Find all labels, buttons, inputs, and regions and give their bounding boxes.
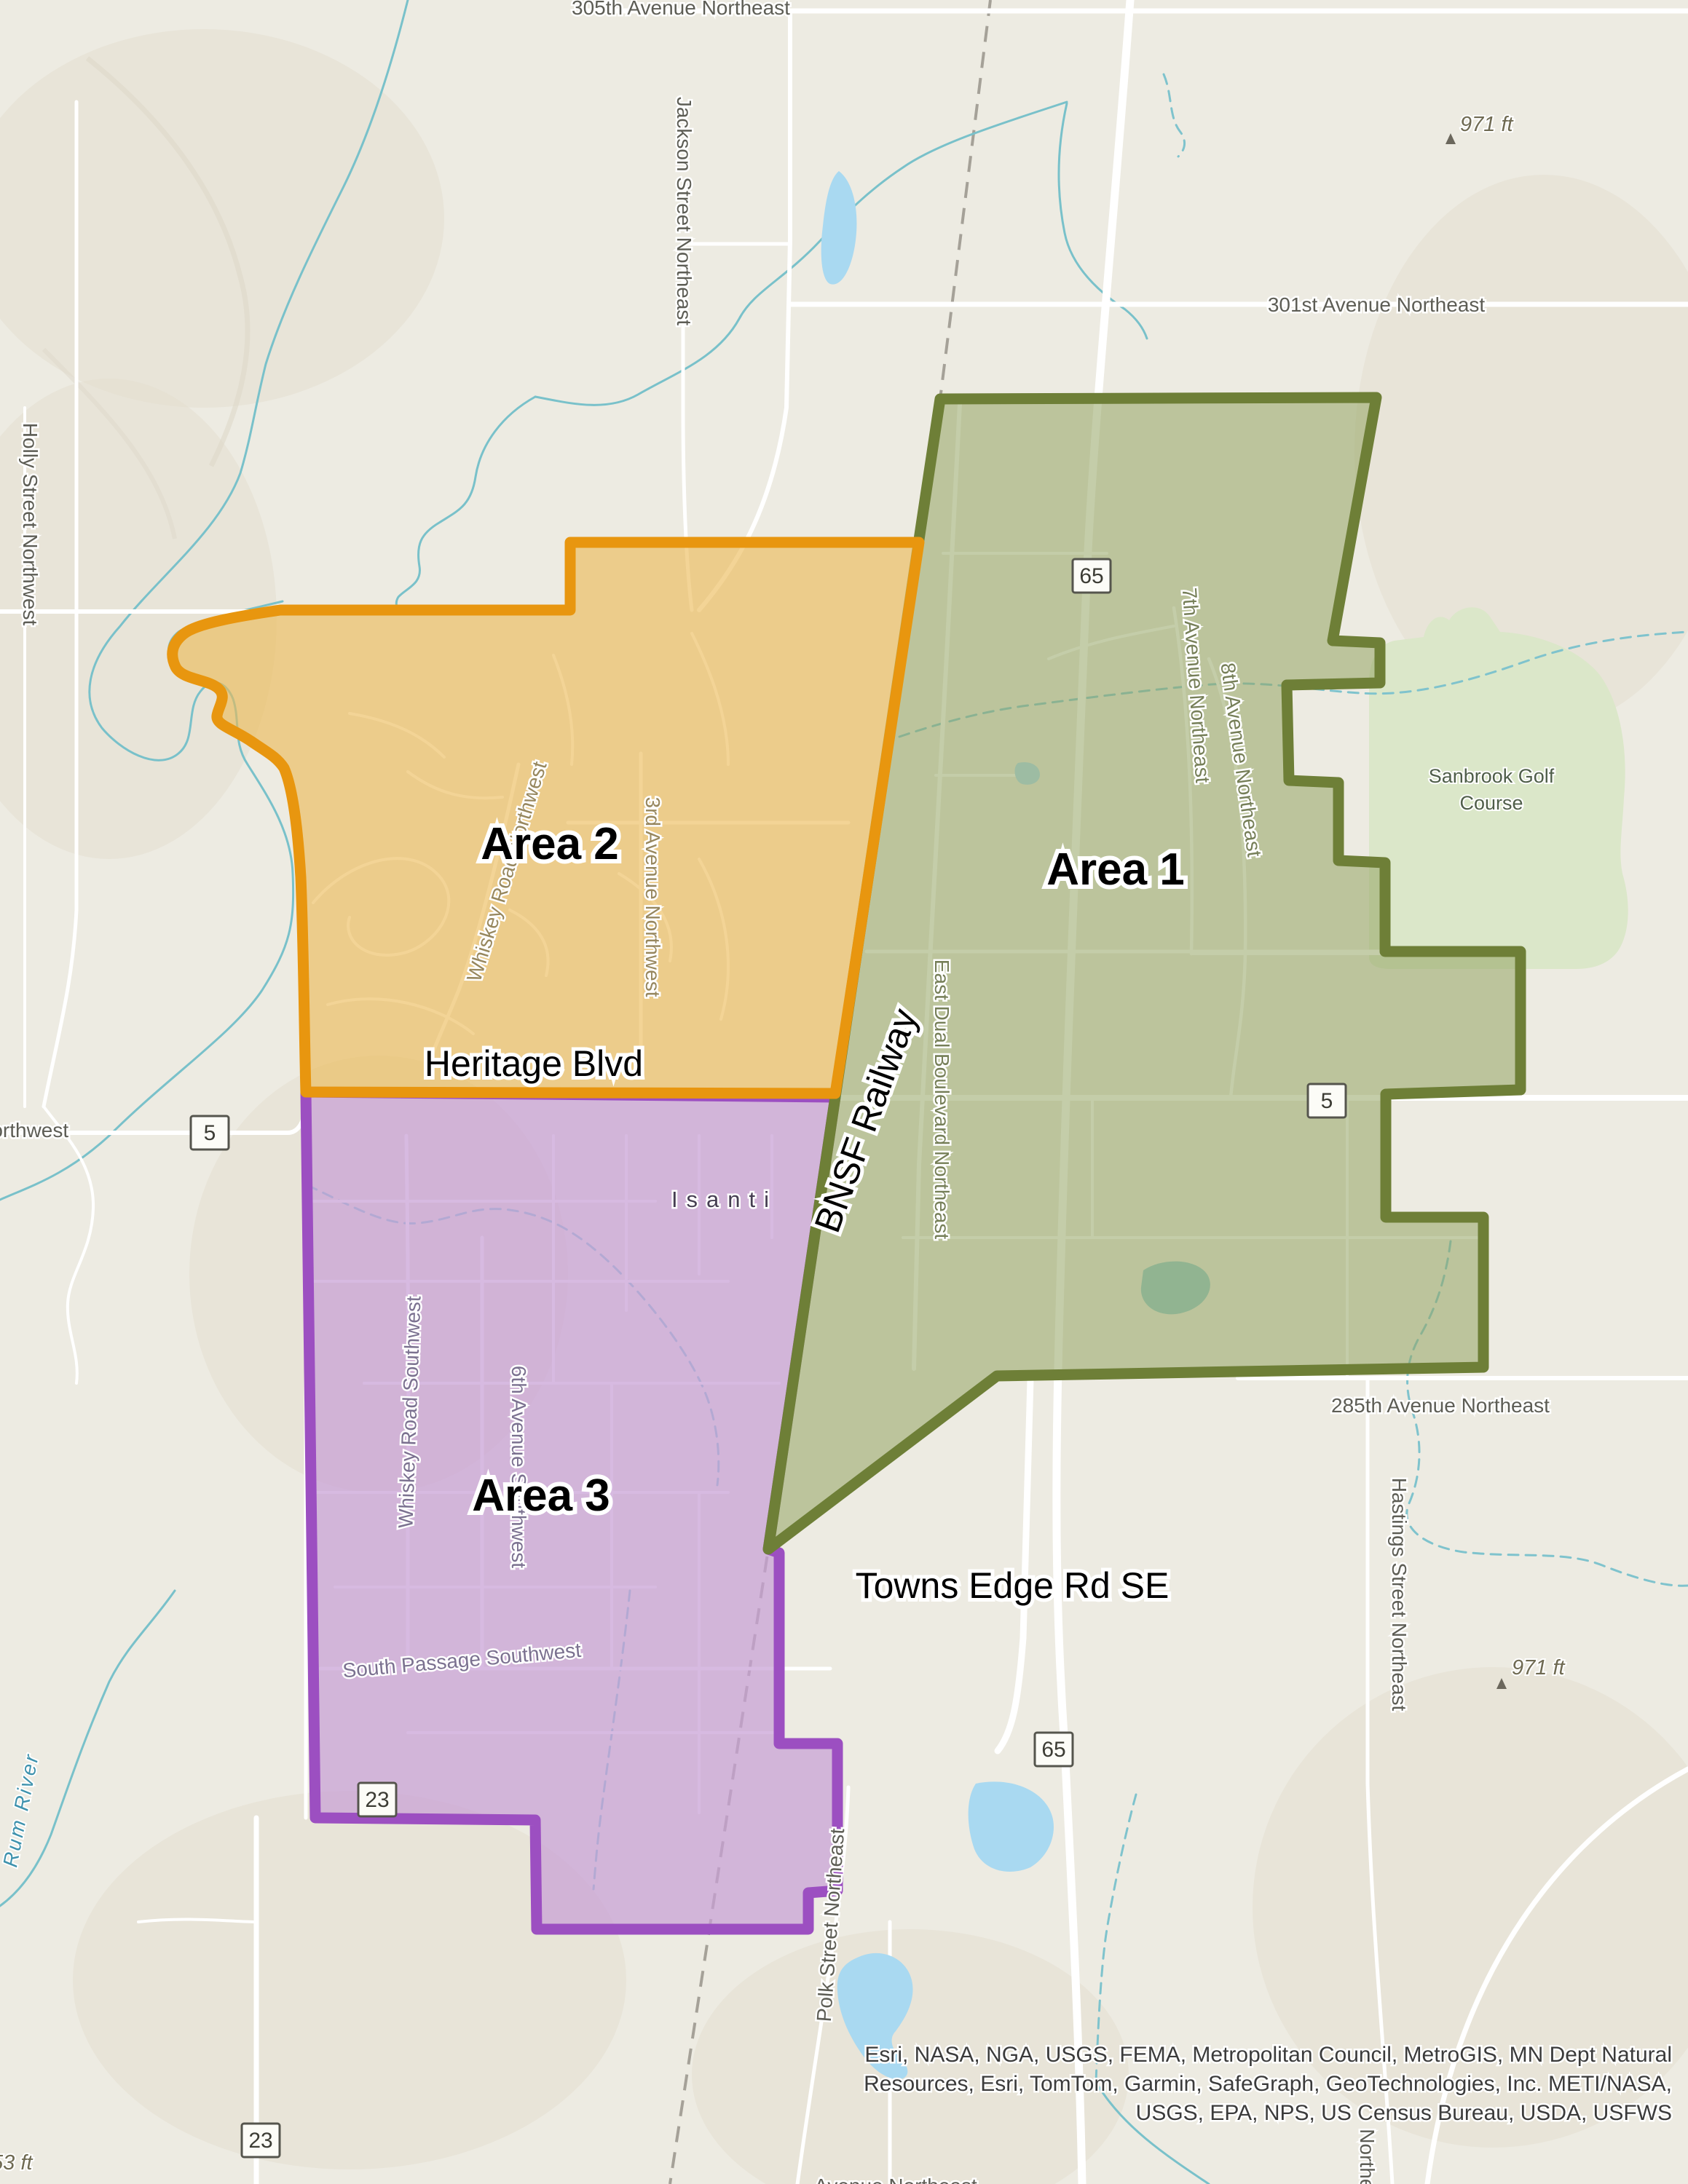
elevation-label-3: 53 ft xyxy=(0,2151,33,2175)
street-label-east-dual: East Dual Boulevard Northeast xyxy=(931,960,953,1240)
svg-text:65: 65 xyxy=(1079,564,1103,588)
svg-text:23: 23 xyxy=(365,1788,389,1812)
golf-label-line1: Sanbrook Golf xyxy=(1429,765,1555,787)
street-label-holly: Holly Street Northwest xyxy=(19,423,42,626)
street-label-road5: ad 5 Northwest xyxy=(0,1119,68,1142)
area2-label: Area 2 xyxy=(481,819,619,869)
shield-5-east: 5 xyxy=(1308,1084,1346,1117)
elevation-label-1: 971 ft xyxy=(1460,113,1514,136)
street-label-305th: 305th Avenue Northeast xyxy=(572,0,790,19)
svg-text:23: 23 xyxy=(248,2129,272,2153)
towns-edge-label: Towns Edge Rd SE xyxy=(856,1565,1170,1606)
attribution-line1: Esri, NASA, NGA, USGS, FEMA, Metropolita… xyxy=(864,2043,1672,2067)
street-label-jackson: Jackson Street Northeast xyxy=(673,97,695,326)
attribution-line3: USGS, EPA, NPS, US Census Bureau, USDA, … xyxy=(1136,2101,1672,2125)
attribution-line2: Resources, Esri, TomTom, Garmin, SafeGra… xyxy=(864,2072,1672,2096)
street-label-285th: 285th Avenue Northeast xyxy=(1331,1394,1550,1417)
street-label-partial-avenue: Avenue Northeast xyxy=(814,2175,977,2184)
shield-65-south: 65 xyxy=(1035,1733,1073,1766)
shield-23-north: 23 xyxy=(358,1783,396,1816)
golf-label-line2: Course xyxy=(1459,792,1523,814)
map-screenshot: 305th Avenue Northeast 301st Avenue Nort… xyxy=(0,0,1688,2184)
street-label-301st: 301st Avenue Northeast xyxy=(1268,293,1486,316)
city-label-isanti: Isanti xyxy=(671,1187,778,1212)
shield-65-north: 65 xyxy=(1073,559,1111,593)
svg-text:5: 5 xyxy=(1321,1089,1333,1113)
area1-label: Area 1 xyxy=(1046,844,1185,895)
street-label-6th-ave: 6th Avenue Southwest xyxy=(508,1366,530,1568)
shield-5-west: 5 xyxy=(191,1116,229,1150)
area3-label: Area 3 xyxy=(472,1471,610,1521)
map-canvas[interactable]: 305th Avenue Northeast 301st Avenue Nort… xyxy=(0,0,1688,2184)
elevation-label-2: 971 ft xyxy=(1512,1656,1566,1679)
svg-text:65: 65 xyxy=(1041,1738,1065,1762)
street-label-3rd-ave: 3rd Avenue Northwest xyxy=(642,797,664,997)
street-label-partial-northeast: Northeast xyxy=(1356,2129,1379,2184)
street-label-hastings: Hastings Street Northeast xyxy=(1388,1478,1411,1712)
shield-23-south: 23 xyxy=(242,2124,280,2157)
svg-text:5: 5 xyxy=(204,1121,216,1145)
heritage-blvd-label: Heritage Blvd xyxy=(425,1043,643,1084)
